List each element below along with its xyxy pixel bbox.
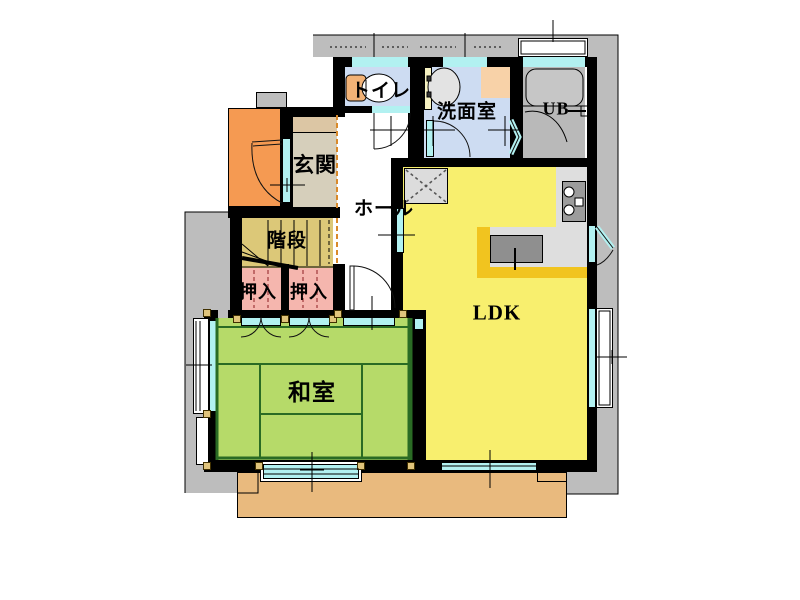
- label-hall: ホール: [354, 194, 414, 221]
- label-ldk: LDK: [473, 301, 522, 326]
- label-closet-right: 押入: [290, 278, 328, 304]
- label-closet-left: 押入: [239, 278, 277, 304]
- label-entrance: 玄関: [293, 149, 337, 179]
- label-washroom: 洗面室: [437, 97, 497, 124]
- label-japanese-room: 和室: [288, 373, 336, 407]
- label-toilet: トイレ: [351, 76, 411, 103]
- label-stairs: 階段: [267, 226, 307, 253]
- label-unit-bath: UB: [542, 99, 569, 120]
- floor-plan: トイレ 洗面室 UB 玄関 ホール 階段 押入 押入 和室 LDK: [0, 0, 800, 600]
- stove-burners: [564, 187, 583, 215]
